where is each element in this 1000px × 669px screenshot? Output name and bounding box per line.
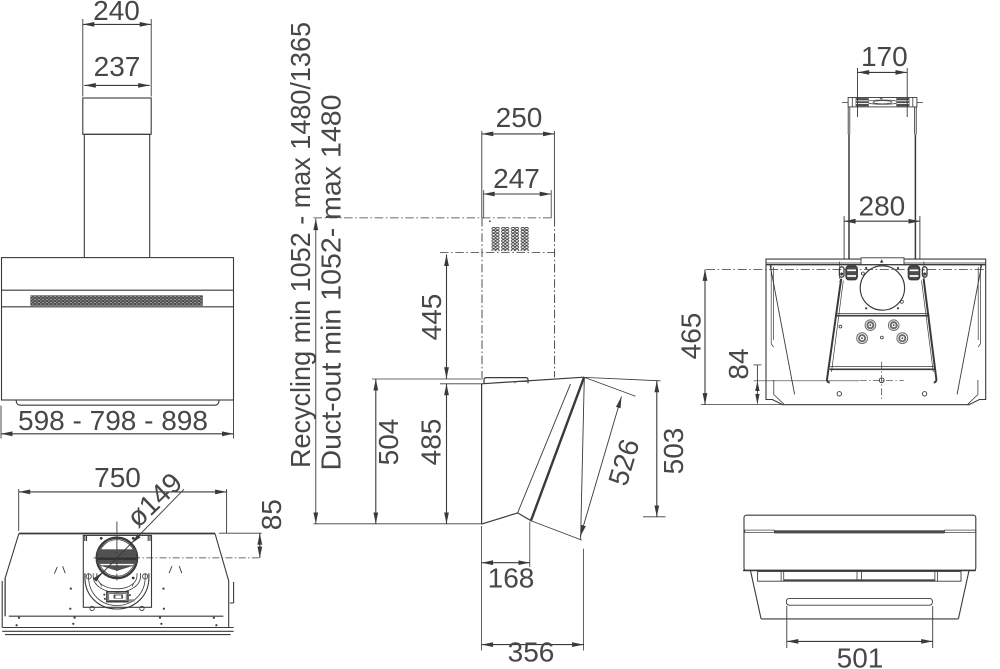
svg-text:250: 250 bbox=[496, 102, 543, 133]
svg-text:445: 445 bbox=[416, 294, 447, 341]
svg-text:280: 280 bbox=[859, 191, 906, 222]
svg-text:750: 750 bbox=[94, 462, 141, 493]
svg-text:504: 504 bbox=[373, 419, 404, 466]
svg-text:526: 526 bbox=[602, 436, 645, 490]
svg-text:465: 465 bbox=[675, 313, 706, 360]
svg-text:85: 85 bbox=[256, 499, 287, 530]
svg-text:598 - 798 - 898: 598 - 798 - 898 bbox=[18, 405, 208, 436]
svg-text:237: 237 bbox=[94, 51, 141, 82]
svg-text:485: 485 bbox=[416, 419, 447, 466]
svg-text:501: 501 bbox=[837, 643, 884, 669]
svg-text:247: 247 bbox=[493, 163, 540, 194]
svg-text:Duct-out min 1052- max 1480: Duct-out min 1052- max 1480 bbox=[315, 95, 346, 471]
svg-text:168: 168 bbox=[488, 563, 535, 594]
svg-text:170: 170 bbox=[861, 41, 908, 72]
svg-text:503: 503 bbox=[658, 428, 689, 475]
svg-text:Recycling min 1052 - max 1480/: Recycling min 1052 - max 1480/1365 bbox=[285, 22, 316, 468]
svg-text:356: 356 bbox=[508, 637, 555, 668]
svg-text:84: 84 bbox=[723, 348, 754, 379]
svg-text:240: 240 bbox=[93, 0, 140, 26]
